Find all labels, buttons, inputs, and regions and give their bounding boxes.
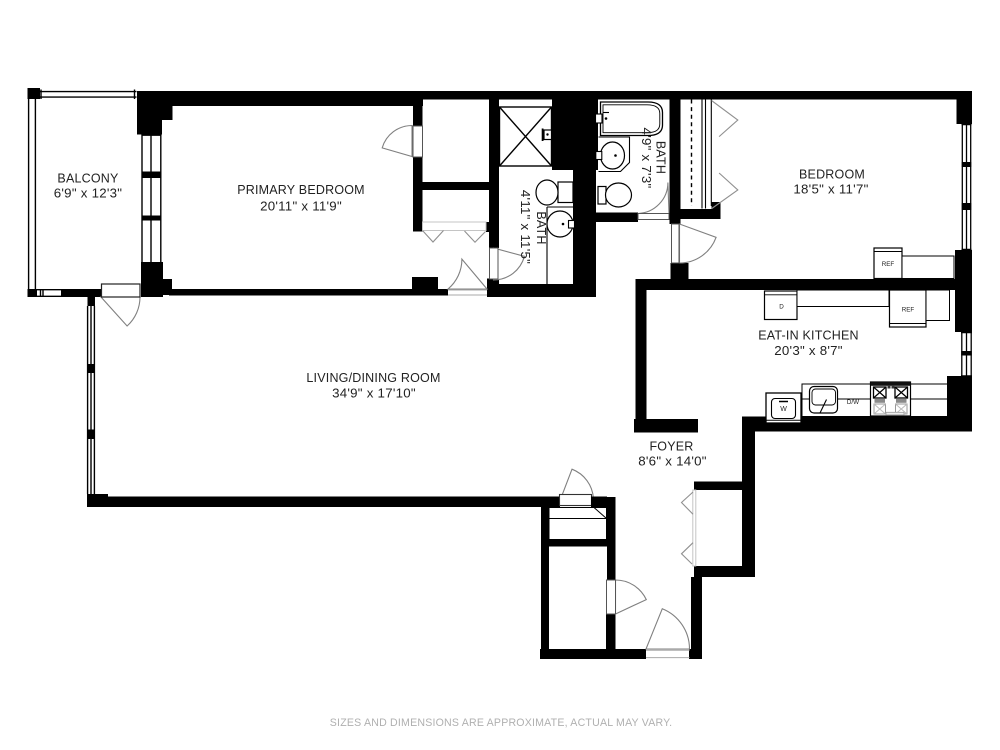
svg-text:34'9" x 17'10": 34'9" x 17'10" [332,386,416,401]
svg-text:20'3" x 8'7": 20'3" x 8'7" [774,343,843,358]
svg-text:18'5" x 11'7": 18'5" x 11'7" [793,181,868,196]
svg-text:BATH: BATH [534,211,548,244]
svg-text:8'6" x 14'0": 8'6" x 14'0" [638,454,707,469]
svg-text:FOYER: FOYER [649,440,693,454]
svg-text:PRIMARY BEDROOM: PRIMARY BEDROOM [237,183,365,197]
svg-text:REF: REF [882,261,895,268]
svg-text:4'9" x 7'3": 4'9" x 7'3" [639,128,654,189]
svg-text:REF: REF [902,307,915,314]
svg-text:D: D [779,304,784,311]
svg-text:4'11" x 11'5": 4'11" x 11'5" [518,190,533,264]
svg-text:SIZES AND DIMENSIONS ARE APPRO: SIZES AND DIMENSIONS ARE APPROXIMATE, AC… [330,717,672,729]
svg-text:EAT-IN KITCHEN: EAT-IN KITCHEN [758,329,859,343]
svg-text:BALCONY: BALCONY [57,171,119,185]
svg-text:BEDROOM: BEDROOM [799,168,865,182]
svg-text:LIVING/DINING ROOM: LIVING/DINING ROOM [306,371,440,385]
svg-text:BATH: BATH [654,141,668,174]
svg-text:D/W: D/W [847,399,859,406]
svg-text:20'11" x 11'9": 20'11" x 11'9" [260,199,342,214]
svg-text:W: W [780,406,787,413]
svg-text:6'9" x 12'3": 6'9" x 12'3" [54,186,123,201]
